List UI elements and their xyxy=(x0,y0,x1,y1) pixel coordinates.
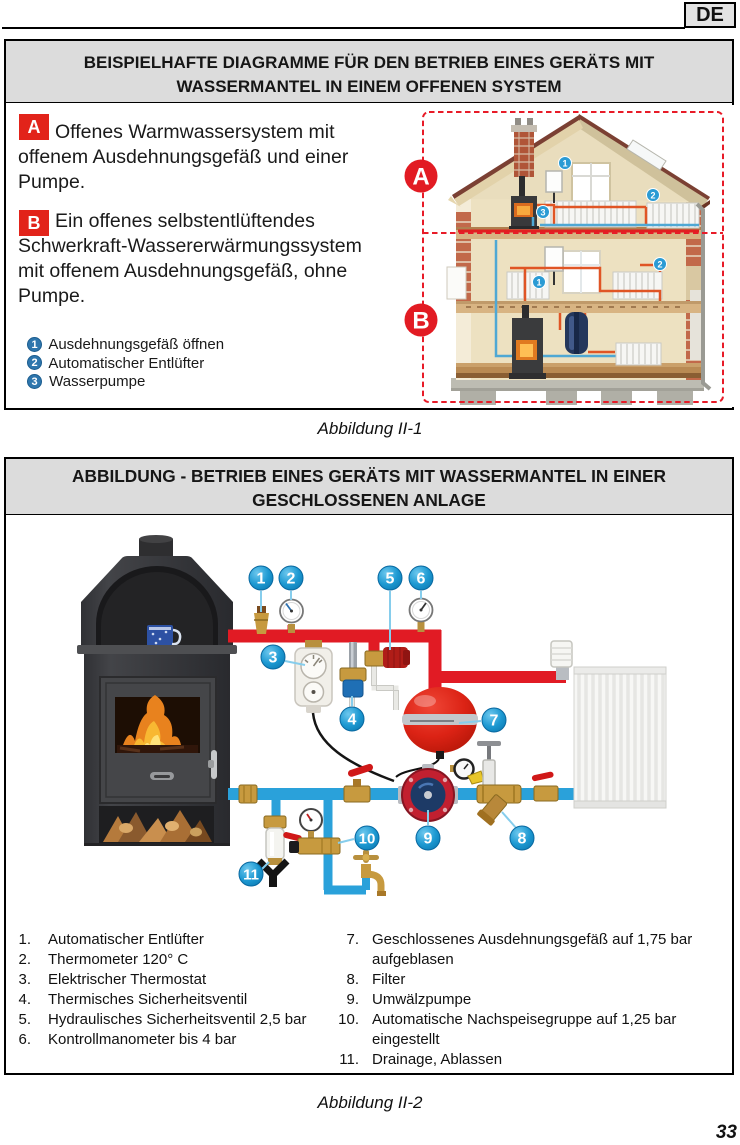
svg-text:3: 3 xyxy=(269,650,278,667)
svg-text:A: A xyxy=(412,164,429,191)
svg-text:11: 11 xyxy=(243,867,259,884)
svg-text:6: 6 xyxy=(417,571,426,588)
svg-text:5: 5 xyxy=(386,571,395,588)
svg-text:3: 3 xyxy=(31,376,37,388)
svg-text:1: 1 xyxy=(562,159,567,169)
svg-text:9: 9 xyxy=(424,831,433,848)
svg-text:1: 1 xyxy=(257,571,266,588)
svg-text:8: 8 xyxy=(518,831,527,848)
svg-text:7: 7 xyxy=(490,713,499,730)
svg-text:2: 2 xyxy=(31,357,37,369)
svg-text:B: B xyxy=(412,308,429,335)
svg-text:2: 2 xyxy=(657,260,662,270)
svg-text:1: 1 xyxy=(31,339,37,351)
svg-text:2: 2 xyxy=(287,571,296,588)
svg-text:2: 2 xyxy=(650,191,655,201)
svg-text:10: 10 xyxy=(359,831,376,848)
svg-text:3: 3 xyxy=(540,208,545,218)
svg-text:4: 4 xyxy=(348,712,357,729)
svg-text:1: 1 xyxy=(536,278,541,288)
